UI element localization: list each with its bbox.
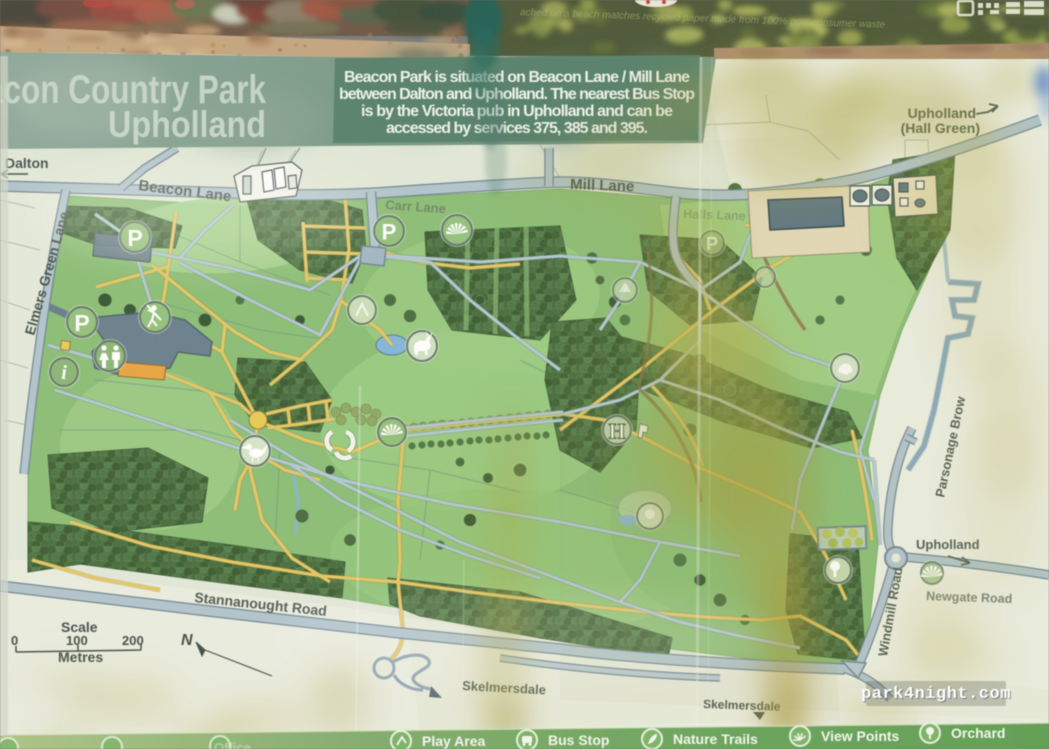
svg-text:Nature Trails: Nature Trails xyxy=(673,731,758,747)
svg-text:Play Area: Play Area xyxy=(422,733,486,749)
svg-text:park4night.com: park4night.com xyxy=(861,685,1011,704)
svg-text:Office: Office xyxy=(214,740,251,749)
svg-text:Orchard: Orchard xyxy=(951,725,1005,741)
svg-text:Bus Stop: Bus Stop xyxy=(548,732,609,748)
svg-text:View Points: View Points xyxy=(821,728,900,744)
